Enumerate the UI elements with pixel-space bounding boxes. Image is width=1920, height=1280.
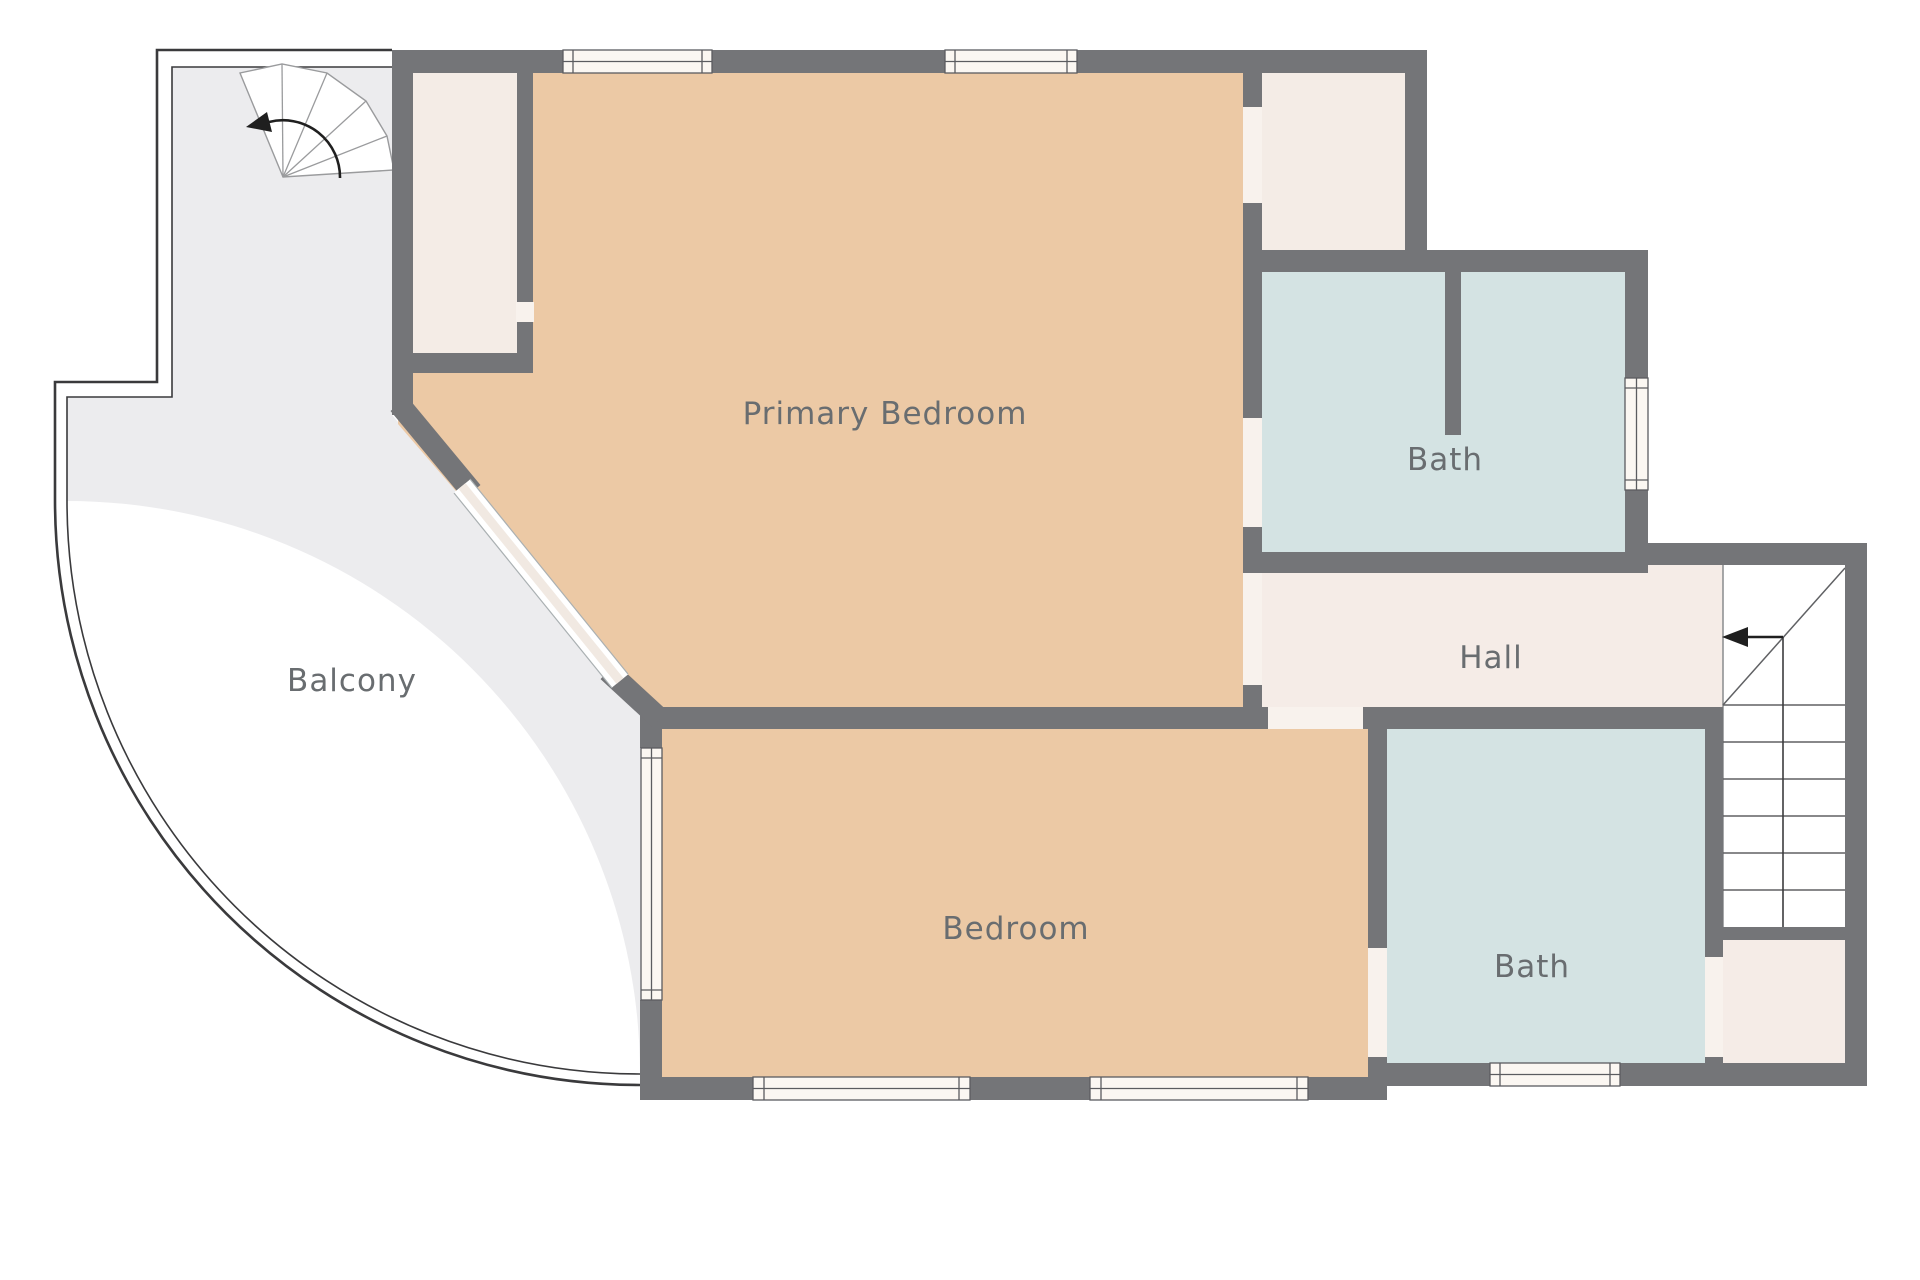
wall-closet-tr-right [1405,50,1427,260]
wall-bath-ensuite-bottom [1262,552,1648,573]
closet-topright-floor [1262,66,1410,260]
wall-closet-tl-bottom [392,353,533,373]
door-primary-hall [1243,573,1262,685]
wall-primary-right-1 [1243,70,1262,107]
label-balcony: Balcony [287,663,417,699]
window-bath-ensuite [1625,378,1648,490]
window-top-1 [563,50,712,73]
wall-mid-right [1363,707,1723,729]
wall-bath-partition [1445,272,1461,435]
wall-bath-ensuite-right-2 [1625,490,1648,543]
wall-bath-ensuite-top [1243,250,1648,272]
label-primary-bedroom: Primary Bedroom [743,396,1028,432]
wall-bath-main-left-1 [1368,707,1387,948]
label-hall: Hall [1459,640,1523,676]
wall-bedroom-left-2 [640,1000,662,1078]
wall-stair-top [1625,543,1867,565]
stairwell-floor [1723,565,1845,927]
closet-topleft-floor [407,66,520,360]
door-hall-bedroom [1268,707,1363,729]
wall-mid-left [650,707,1268,729]
wall-stair-bottom-edge [1723,927,1845,940]
door-bath-ensuite [1243,418,1262,527]
wall-bath-main-left-2 [1368,1057,1387,1078]
door-bath-landing [1705,957,1723,1057]
bedroom-floor [650,718,1380,1080]
door-closet-topright [1243,107,1262,203]
label-bath-main: Bath [1494,949,1570,985]
stair-landing-floor [1723,940,1845,1063]
wall-primary-right-2 [1243,203,1262,418]
wall-bottom-bath [1387,1063,1867,1086]
window-top-2 [945,50,1077,73]
wall-closet-tl-right [517,73,533,302]
wall-right-outer [1845,543,1867,1086]
floor-plan-page: Primary Bedroom Bath Hall Balcony Bedroo… [0,0,1920,1280]
label-bath-ensuite: Bath [1407,442,1483,478]
window-bottom-1 [753,1077,970,1100]
window-bath-main [1490,1063,1620,1086]
wall-top [392,50,1427,73]
hall-floor [1262,560,1723,710]
wall-bath-ensuite-right-1 [1625,250,1648,380]
wall-primary-right-3 [1243,527,1262,573]
window-bottom-2 [1090,1077,1308,1100]
wall-bath-main-right-2 [1705,1057,1723,1065]
door-closet-topleft [516,302,534,322]
wall-bath-main-right-1 [1705,707,1723,957]
label-bedroom: Bedroom [942,911,1089,947]
door-bedroom-bath [1368,948,1387,1057]
bath-main-floor [1380,718,1715,1075]
floor-plan-canvas: Primary Bedroom Bath Hall Balcony Bedroo… [0,0,1920,1280]
window-bedroom-left [641,748,662,1000]
wall-closet-tl-right-stub [517,322,533,353]
